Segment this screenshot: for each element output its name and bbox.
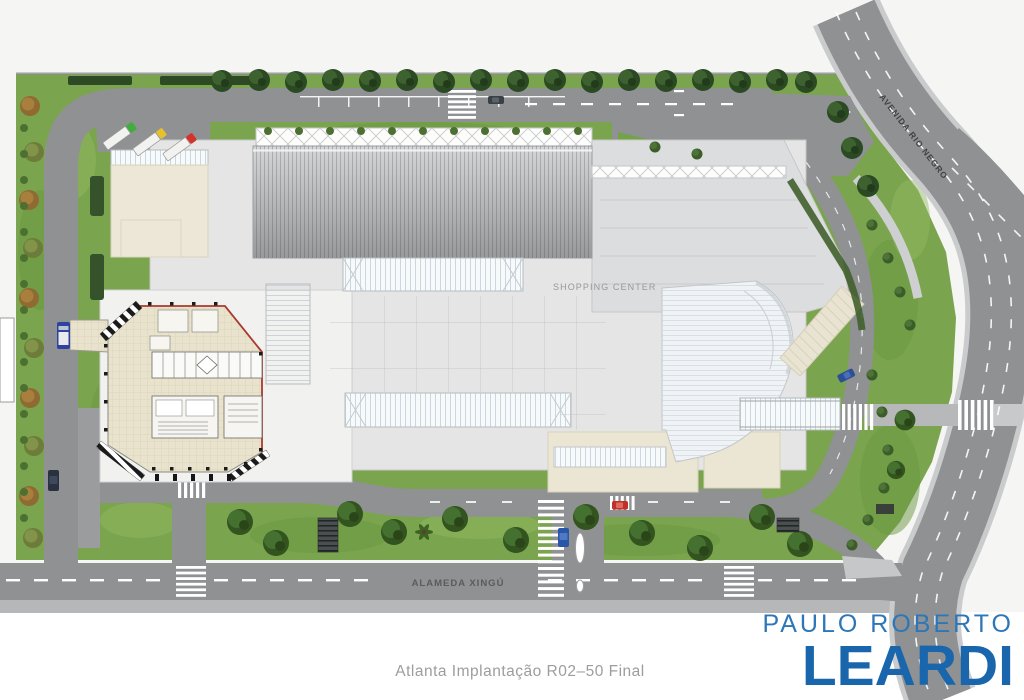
skylight-southeast bbox=[554, 447, 666, 467]
store-grid-east bbox=[560, 296, 606, 430]
logo-line-leardi: LEARDI bbox=[762, 638, 1014, 695]
hedge-block-b bbox=[90, 254, 104, 300]
main-roof-ribs bbox=[253, 146, 592, 258]
northeast-canopy bbox=[592, 166, 786, 178]
pedestrian-bridge bbox=[740, 398, 840, 430]
bike-rack-west bbox=[318, 518, 338, 552]
alameda-xingu-label: ALAMEDA XINGÚ bbox=[412, 577, 505, 589]
skylight-west bbox=[266, 284, 310, 384]
car-left-parking bbox=[48, 470, 59, 491]
car-top-road bbox=[488, 96, 504, 104]
site-plan-image: SHOPPING CENTER AVENIDA RIO NEGRO ALAMED… bbox=[0, 0, 1024, 700]
car-south-entrance bbox=[558, 528, 569, 547]
site-plan-canvas: SHOPPING CENTER AVENIDA RIO NEGRO ALAMED… bbox=[0, 0, 1024, 700]
shopping-center-label: SHOPPING CENTER bbox=[553, 282, 657, 292]
skylight-north bbox=[343, 258, 523, 291]
leardi-logo: PAULO ROBERTO LEARDI bbox=[762, 612, 1014, 695]
drive-island-small bbox=[577, 580, 584, 592]
top-hedge-a bbox=[68, 76, 132, 85]
car-red-service bbox=[612, 501, 628, 510]
bridge-deck bbox=[740, 398, 840, 430]
top-hedge-b bbox=[160, 76, 252, 85]
loading-dock-strip bbox=[111, 150, 208, 165]
west-beige-block bbox=[111, 165, 208, 257]
store-grid bbox=[330, 296, 560, 392]
island-shelter bbox=[876, 504, 894, 514]
hedge-block-a bbox=[90, 176, 104, 216]
parallel-parking-strip bbox=[78, 408, 100, 548]
drive-island bbox=[576, 533, 585, 563]
van-left-road bbox=[57, 322, 70, 349]
edge-legend-panel bbox=[0, 318, 14, 402]
core-west-cell-a bbox=[156, 400, 182, 416]
bike-rack-east bbox=[777, 518, 799, 532]
crosswalk-central bbox=[538, 500, 564, 597]
core-east bbox=[224, 396, 262, 438]
skylight-south bbox=[345, 393, 571, 427]
core-west-cell-b bbox=[186, 400, 214, 416]
